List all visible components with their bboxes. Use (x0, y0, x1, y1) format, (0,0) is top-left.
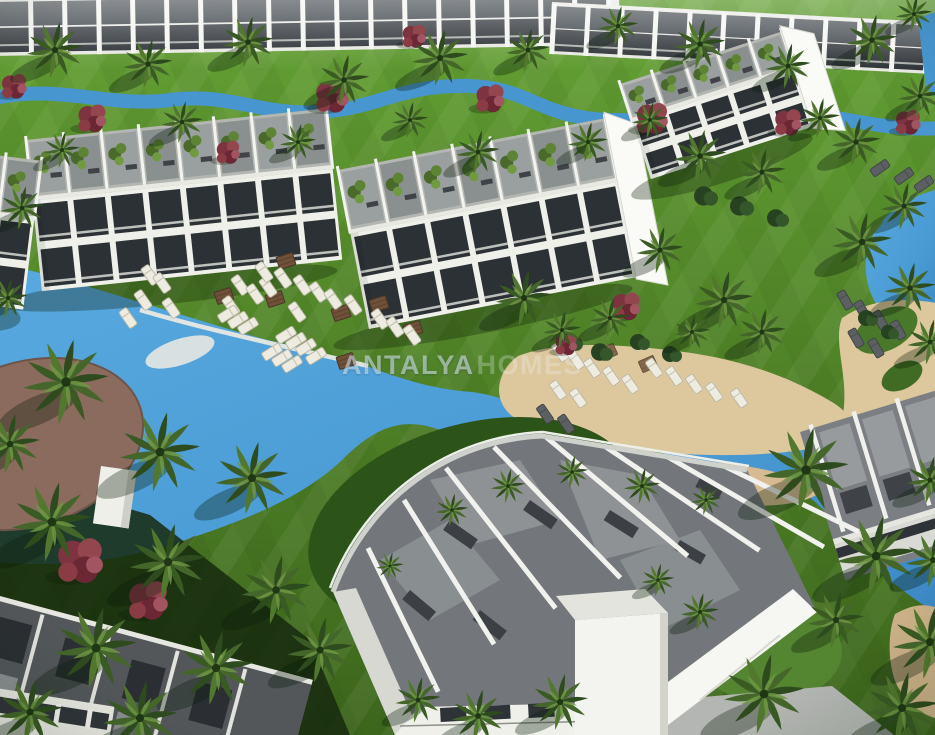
vignette (0, 0, 935, 735)
render-canvas (0, 0, 935, 735)
resort-aerial-render: ANTALYAHOMES (0, 0, 935, 735)
